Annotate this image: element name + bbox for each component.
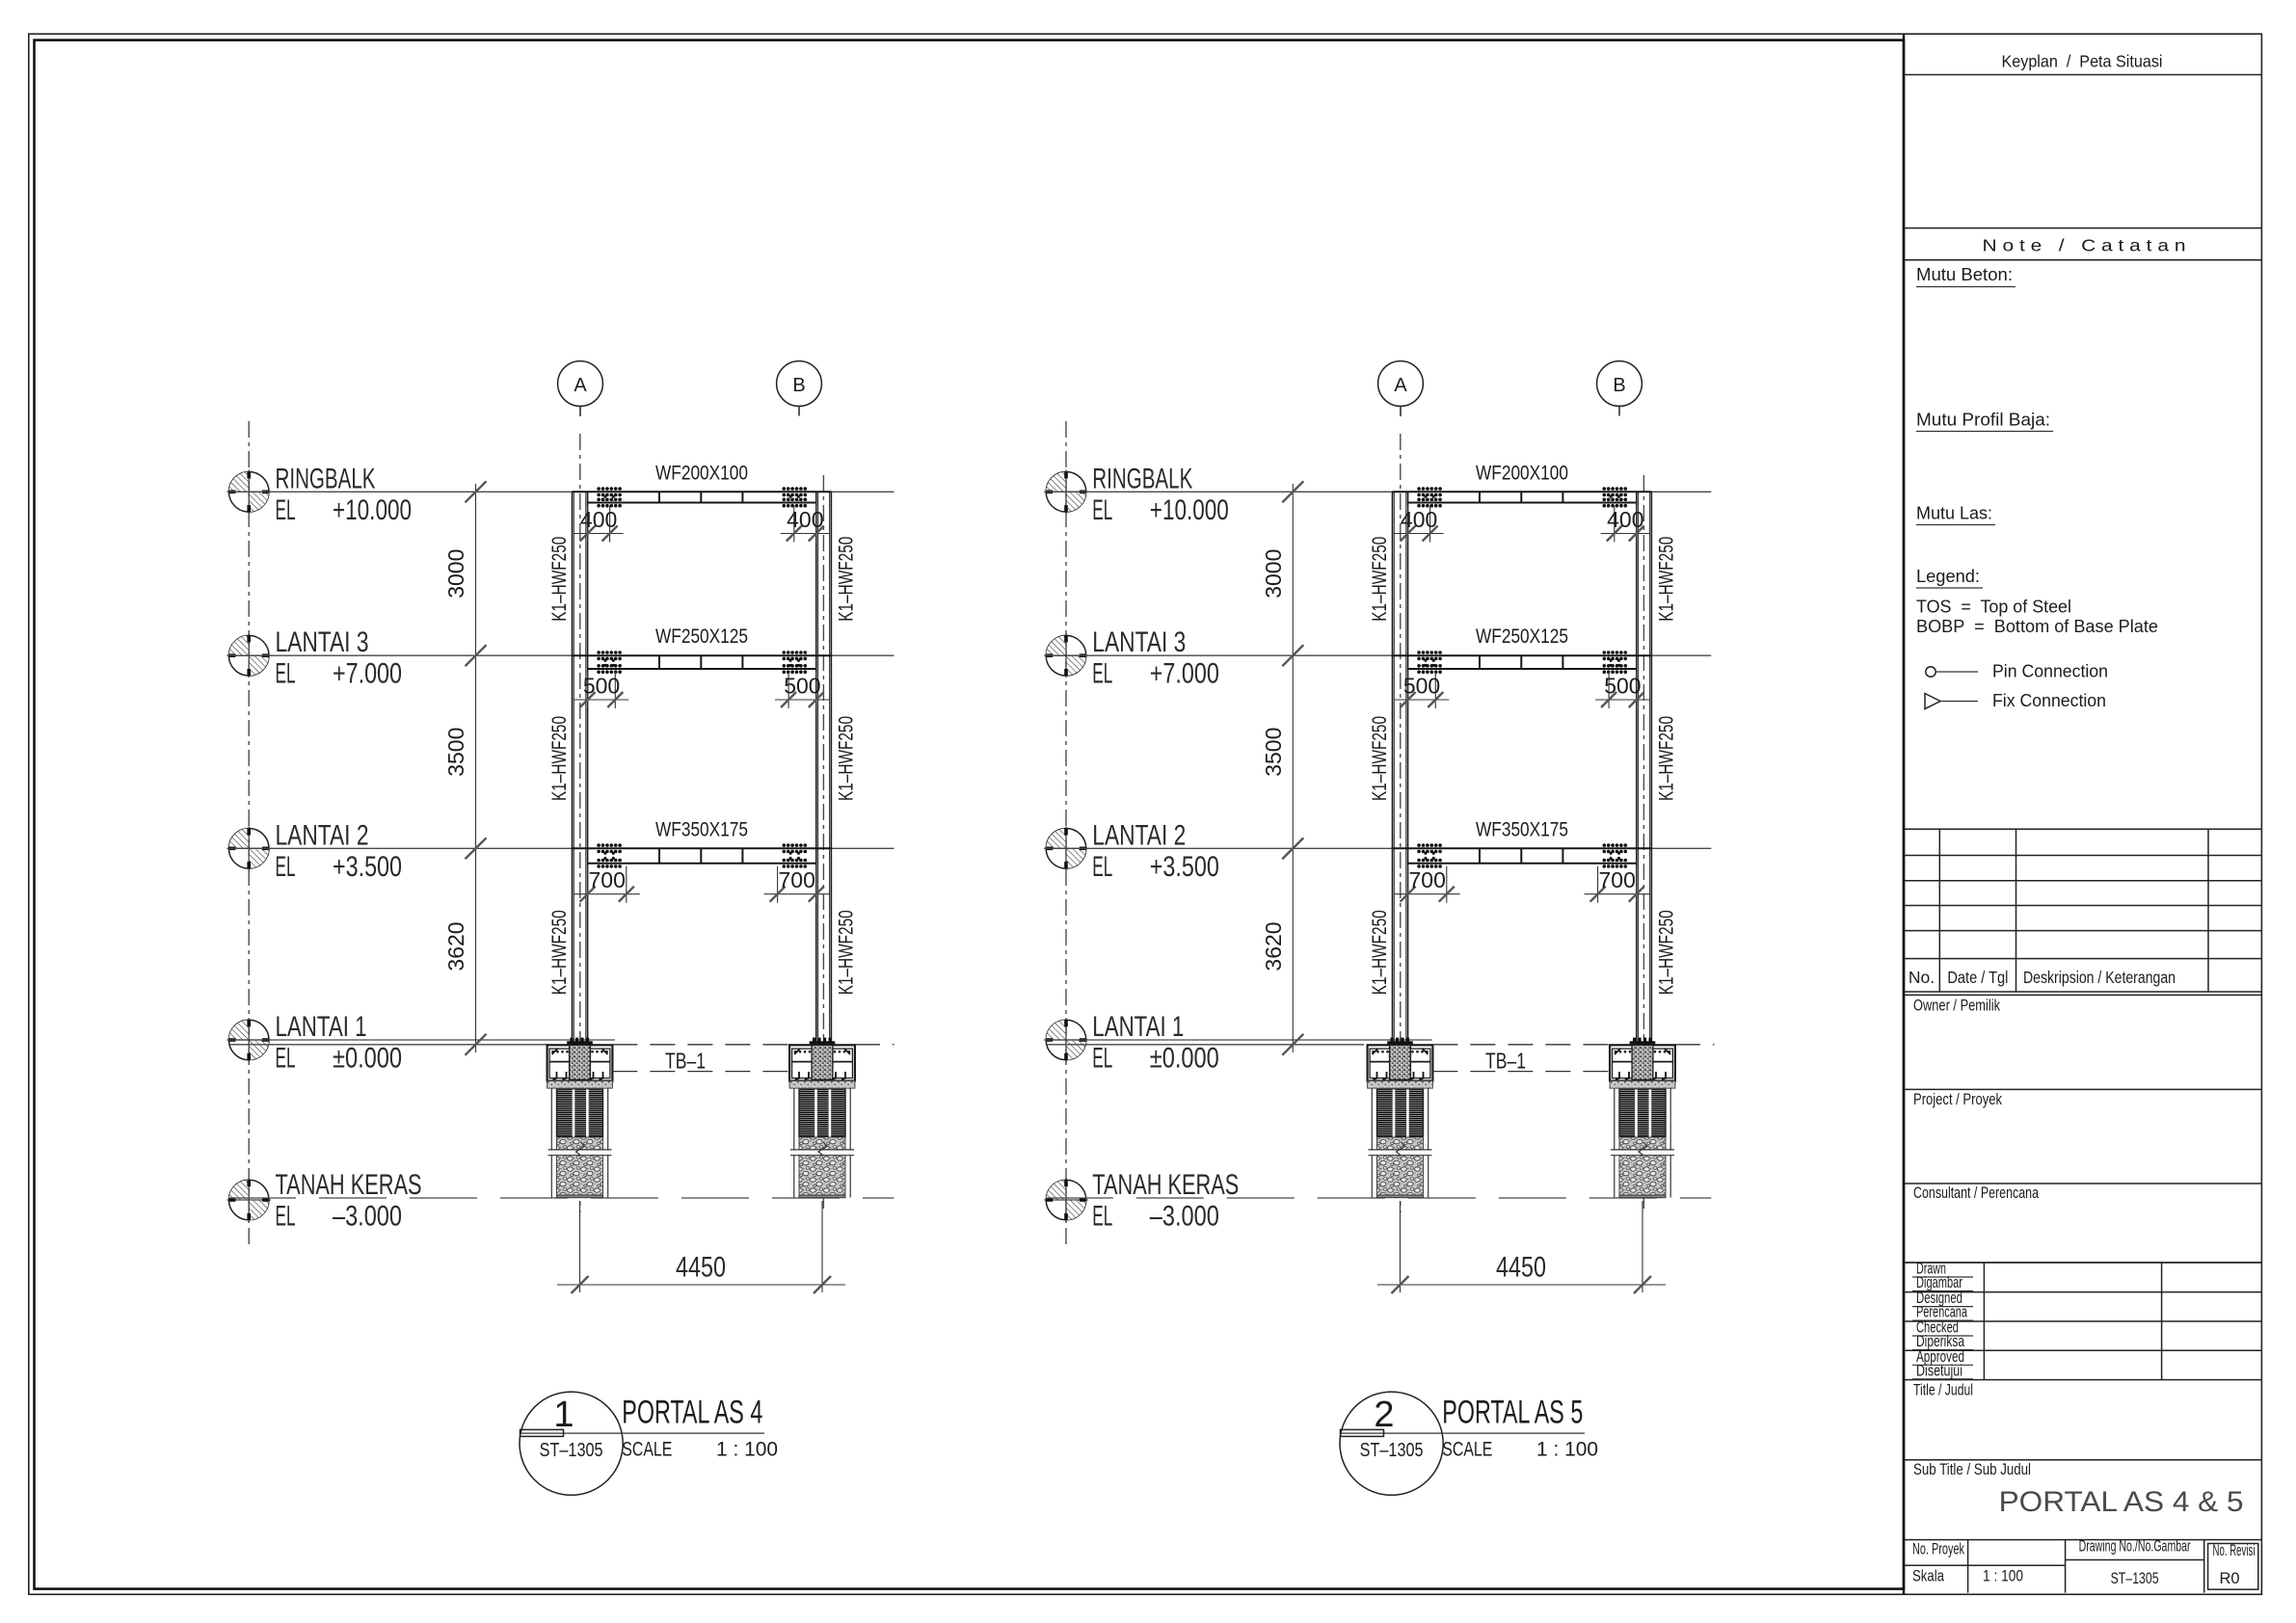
- svg-text:Skala: Skala: [1912, 1567, 1945, 1584]
- svg-text:TOS = Top of Steel: TOS = Top of Steel: [1916, 597, 2071, 617]
- svg-text:Title / Judul: Title / Judul: [1913, 1382, 1973, 1399]
- svg-text:Drawing No./No.Gambar: Drawing No./No.Gambar: [2079, 1538, 2191, 1556]
- svg-text:PORTAL AS 4 & 5: PORTAL AS 4 & 5: [1999, 1486, 2244, 1518]
- svg-text:Consultant / Perencana: Consultant / Perencana: [1913, 1184, 2040, 1202]
- svg-text:Pin Connection: Pin Connection: [1992, 661, 2108, 681]
- svg-text:R0: R0: [2219, 1570, 2239, 1587]
- svg-text:1: 1: [553, 1395, 574, 1435]
- svg-text:PORTAL AS 4: PORTAL AS 4: [622, 1395, 762, 1431]
- svg-text:Legend:: Legend:: [1916, 566, 1980, 586]
- svg-text:Mutu Las:: Mutu Las:: [1916, 502, 1992, 522]
- svg-text:No. Proyek: No. Proyek: [1912, 1540, 1964, 1557]
- svg-text:Project / Proyek: Project / Proyek: [1913, 1091, 2003, 1108]
- svg-text:BOBP = Bottom of Base Plate: BOBP = Bottom of Base Plate: [1916, 616, 2158, 636]
- svg-text:SCALE: SCALE: [622, 1439, 672, 1461]
- svg-text:1 : 100: 1 : 100: [1536, 1439, 1598, 1461]
- svg-text:Owner / Pemilik: Owner / Pemilik: [1913, 998, 2001, 1015]
- svg-text:ST–1305: ST–1305: [2111, 1570, 2159, 1587]
- svg-text:1 : 100: 1 : 100: [1983, 1567, 2023, 1584]
- svg-text:SCALE: SCALE: [1442, 1439, 1492, 1461]
- svg-text:Deskripsion / Keterangan: Deskripsion / Keterangan: [2023, 968, 2176, 987]
- svg-text:2: 2: [1374, 1395, 1394, 1435]
- svg-text:No. Revisi: No. Revisi: [2213, 1542, 2256, 1559]
- svg-text:Keyplan / Peta Situasi: Keyplan / Peta Situasi: [2002, 52, 2163, 71]
- svg-text:1 : 100: 1 : 100: [716, 1439, 778, 1461]
- svg-text:Sub Title / Sub Judul: Sub Title / Sub Judul: [1913, 1461, 2031, 1478]
- svg-text:Disetujui: Disetujui: [1916, 1362, 1962, 1379]
- svg-text:Mutu Profil Baja:: Mutu Profil Baja:: [1916, 409, 2050, 429]
- svg-text:Date / Tgl: Date / Tgl: [1947, 968, 2008, 987]
- svg-text:PORTAL AS 5: PORTAL AS 5: [1442, 1395, 1583, 1431]
- svg-text:ST–1305: ST–1305: [1360, 1440, 1424, 1461]
- svg-text:ST–1305: ST–1305: [540, 1440, 603, 1461]
- svg-text:No.: No.: [1909, 968, 1935, 987]
- svg-text:Fix Connection: Fix Connection: [1992, 690, 2106, 710]
- svg-text:Mutu Beton:: Mutu Beton:: [1916, 264, 2013, 284]
- svg-text:N o t e / C a t a t a n: N o t e / C a t a t a n: [1983, 236, 2186, 255]
